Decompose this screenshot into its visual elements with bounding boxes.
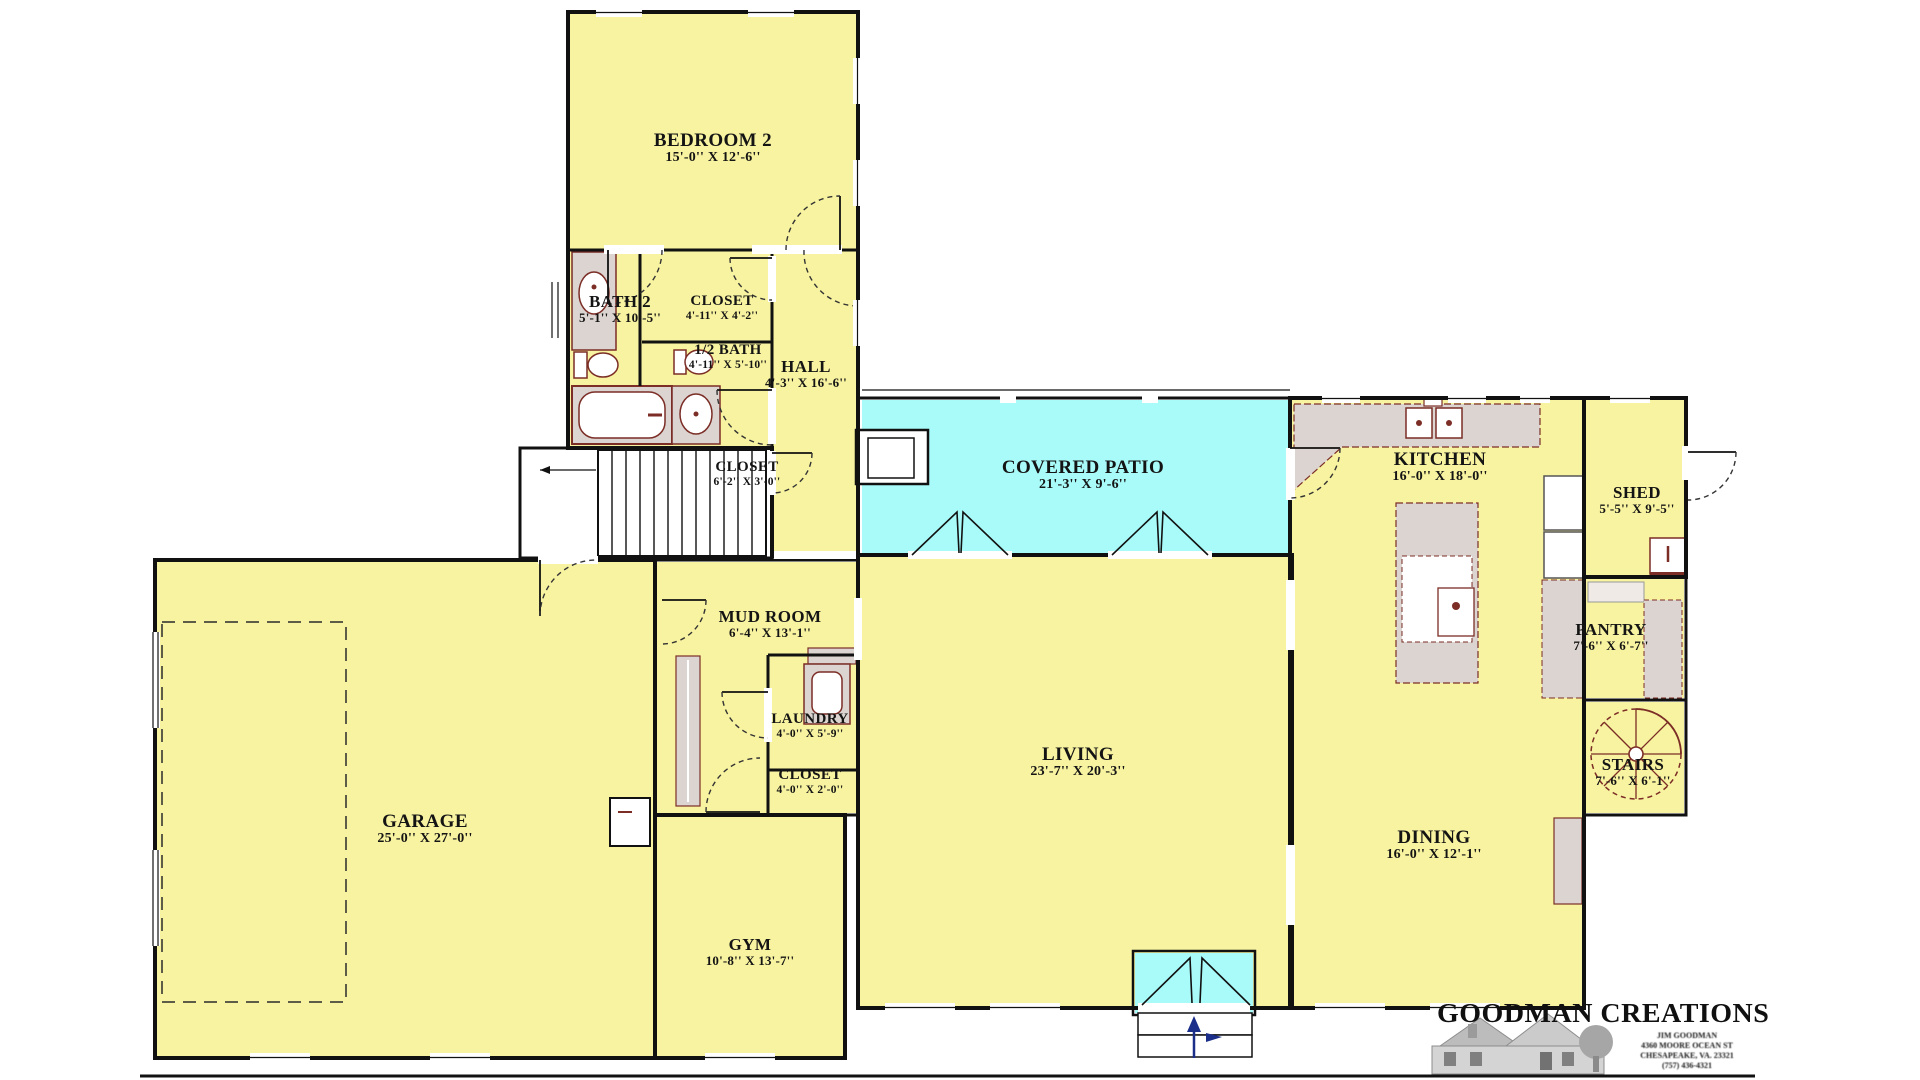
- room-name: LAUNDRY: [771, 712, 848, 728]
- room-label-bedroom2: BEDROOM 2 15'-0'' X 12'-6'': [654, 131, 772, 166]
- room-dims: 4'-0'' X 2'-0'': [777, 784, 844, 796]
- room-dims: 7'-6'' X 6'-1'': [1595, 774, 1670, 788]
- room-dims: 6'-2'' X 3'-0'': [714, 476, 781, 488]
- room-name: COVERED PATIO: [1002, 458, 1164, 478]
- room-dims: 7'-6'' X 6'-7'': [1573, 639, 1648, 653]
- room-dims: 10'-8'' X 13'-7'': [706, 954, 795, 968]
- room-label-mud-room: MUD ROOM 6'-4'' X 13'-1'': [719, 608, 822, 640]
- shed-sink: [1650, 538, 1686, 574]
- room-label-stairs: STAIRS 7'-6'' X 6'-1'': [1595, 756, 1670, 788]
- room-dims: 4'-11'' X 4'-2'': [686, 310, 758, 322]
- room-name: CLOSET: [714, 460, 781, 476]
- address-line: JIM GOODMAN: [1612, 1031, 1762, 1041]
- toilet-tank: [674, 350, 686, 374]
- room-label-bath2: BATH 2 5'-1'' X 10'-5'': [579, 293, 661, 325]
- room-name: BATH 2: [579, 293, 661, 311]
- room-dims: 16'-0'' X 18'-0'': [1392, 470, 1487, 485]
- room-name: MUD ROOM: [719, 608, 822, 626]
- utility-box: [610, 798, 650, 846]
- toilet-bowl: [588, 353, 618, 377]
- room-dims: 25'-0'' X 27'-0'': [377, 832, 472, 847]
- room-label-hall: HALL 4'-3'' X 16'-6'': [765, 358, 847, 390]
- room-name: STAIRS: [1595, 756, 1670, 774]
- room-label-living: LIVING 23'-7'' X 20'-3'': [1030, 745, 1125, 780]
- room-label-gym: GYM 10'-8'' X 13'-7'': [706, 936, 795, 968]
- room-label-garage: GARAGE 25'-0'' X 27'-0'': [377, 812, 472, 847]
- room-name: BEDROOM 2: [654, 131, 772, 151]
- room-name: DINING: [1386, 828, 1481, 848]
- room-name: GYM: [706, 936, 795, 954]
- floor-plan-page: BEDROOM 2 15'-0'' X 12'-6'' BATH 2 5'-1'…: [0, 0, 1920, 1080]
- room-label-closet-mud: CLOSET 4'-0'' X 2'-0'': [777, 768, 844, 796]
- room-label-covered-patio: COVERED PATIO 21'-3'' X 9'-6'': [1002, 458, 1164, 493]
- room-label-half-bath: 1/2 BATH 4'-11'' X 5'-10'': [689, 343, 767, 371]
- room-dims: 21'-3'' X 9'-6'': [1002, 478, 1164, 493]
- room-name: HALL: [765, 358, 847, 376]
- room-dims: 4'-11'' X 5'-10'': [689, 359, 767, 371]
- room-dims: 23'-7'' X 20'-3'': [1030, 765, 1125, 780]
- room-name: LIVING: [1030, 745, 1125, 765]
- address-line: 4360 MOORE OCEAN ST: [1612, 1041, 1762, 1051]
- room-label-kitchen: KITCHEN 16'-0'' X 18'-0'': [1392, 450, 1487, 485]
- toilet-tank: [574, 352, 587, 378]
- room-label-shed: SHED 5'-5'' X 9'-5'': [1599, 484, 1674, 516]
- address-line: CHESAPEAKE, VA. 23321: [1612, 1051, 1762, 1061]
- room-name: PANTRY: [1573, 621, 1648, 639]
- room-label-dining: DINING 16'-0'' X 12'-1'': [1386, 828, 1481, 863]
- room-dims: 16'-0'' X 12'-1'': [1386, 848, 1481, 863]
- room-name: 1/2 BATH: [689, 343, 767, 359]
- room-name: SHED: [1599, 484, 1674, 502]
- room-name: GARAGE: [377, 812, 472, 832]
- room-name: CLOSET: [777, 768, 844, 784]
- room-dims: 5'-1'' X 10'-5'': [579, 311, 661, 325]
- floor-plan-drawing: [0, 0, 1920, 1080]
- room-dims: 6'-4'' X 13'-1'': [719, 626, 822, 640]
- room-name: KITCHEN: [1392, 450, 1487, 470]
- room-label-closet-stairs: CLOSET 6'-2'' X 3'-0'': [714, 460, 781, 488]
- room-label-closet-bath: CLOSET 4'-11'' X 4'-2'': [686, 294, 758, 322]
- room-dims: 5'-5'' X 9'-5'': [1599, 502, 1674, 516]
- room-name: CLOSET: [686, 294, 758, 310]
- room-dims: 15'-0'' X 12'-6'': [654, 151, 772, 166]
- patio-fireplace: [856, 430, 928, 484]
- address-line: (757) 436-4321: [1612, 1061, 1762, 1071]
- room-dims: 4'-0'' X 5'-9'': [771, 728, 848, 740]
- dining-cabinet: [1554, 818, 1582, 904]
- room-label-laundry: LAUNDRY 4'-0'' X 5'-9'': [771, 712, 848, 740]
- company-address: JIM GOODMAN 4360 MOORE OCEAN ST CHESAPEA…: [1612, 1031, 1762, 1071]
- room-label-pantry: PANTRY 7'-6'' X 6'-7'': [1573, 621, 1648, 653]
- refrigerator: [1544, 476, 1584, 530]
- company-logo-title: GOODMAN CREATIONS: [1437, 998, 1769, 1029]
- room-dims: 4'-3'' X 16'-6'': [765, 376, 847, 390]
